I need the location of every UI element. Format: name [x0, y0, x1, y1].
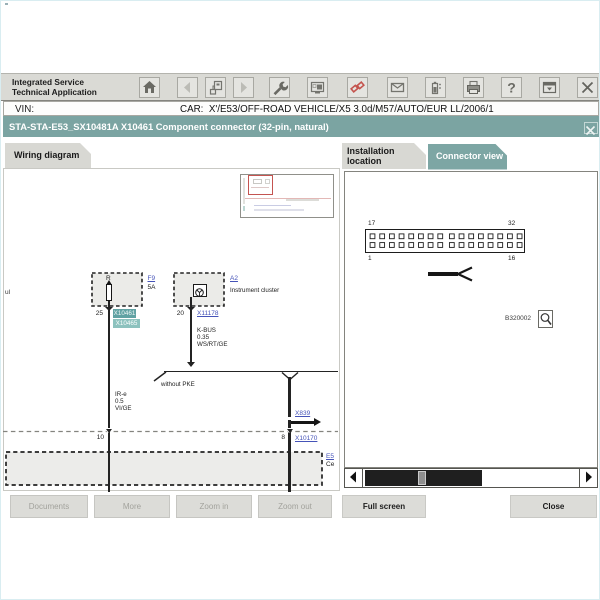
svg-text:?: ?: [507, 80, 516, 96]
